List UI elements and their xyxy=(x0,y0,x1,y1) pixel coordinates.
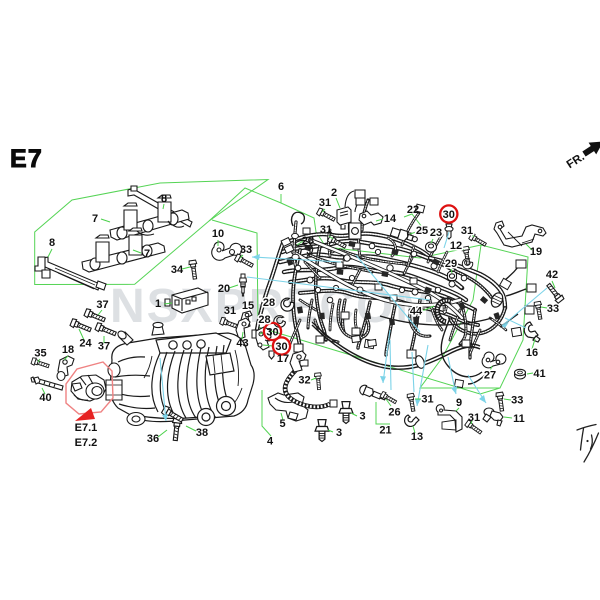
svg-text:38: 38 xyxy=(196,427,208,439)
svg-text:12: 12 xyxy=(450,240,462,252)
svg-text:4: 4 xyxy=(267,436,274,448)
svg-text:30: 30 xyxy=(443,209,455,221)
svg-text:36: 36 xyxy=(147,433,159,445)
svg-text:15: 15 xyxy=(242,300,254,312)
svg-text:31: 31 xyxy=(421,394,433,406)
svg-text:6: 6 xyxy=(278,181,284,193)
svg-text:8: 8 xyxy=(161,193,167,205)
svg-text:35: 35 xyxy=(34,348,46,360)
svg-text:28: 28 xyxy=(263,297,275,309)
svg-text:25: 25 xyxy=(416,225,428,237)
svg-text:14: 14 xyxy=(384,213,397,225)
svg-text:18: 18 xyxy=(62,344,74,356)
svg-text:2: 2 xyxy=(331,187,337,199)
svg-text:28: 28 xyxy=(302,235,314,247)
svg-text:40: 40 xyxy=(39,392,51,404)
svg-text:11: 11 xyxy=(513,413,525,425)
svg-text:30: 30 xyxy=(266,327,278,339)
svg-text:44: 44 xyxy=(410,306,423,318)
svg-text:22: 22 xyxy=(407,204,419,216)
svg-text:16: 16 xyxy=(526,347,538,359)
svg-text:21: 21 xyxy=(379,425,391,437)
svg-text:42: 42 xyxy=(546,269,558,281)
svg-text:E7: E7 xyxy=(10,145,43,173)
svg-text:33: 33 xyxy=(240,244,252,256)
svg-text:20: 20 xyxy=(218,283,230,295)
svg-text:5: 5 xyxy=(279,418,285,430)
svg-text:37: 37 xyxy=(96,299,108,311)
svg-text:E7.2: E7.2 xyxy=(75,437,98,449)
svg-text:E7.1: E7.1 xyxy=(75,422,98,434)
svg-text:37: 37 xyxy=(98,341,110,353)
svg-text:23: 23 xyxy=(430,227,442,239)
svg-text:43: 43 xyxy=(236,338,248,350)
svg-text:7: 7 xyxy=(92,213,98,225)
svg-text:3: 3 xyxy=(359,411,365,423)
svg-text:31: 31 xyxy=(468,412,480,424)
svg-text:19: 19 xyxy=(530,246,542,258)
svg-text:31: 31 xyxy=(224,305,236,317)
svg-text:29: 29 xyxy=(445,258,457,270)
svg-text:31: 31 xyxy=(320,224,332,236)
svg-text:26: 26 xyxy=(388,407,400,419)
svg-text:33: 33 xyxy=(511,395,523,407)
svg-text:30: 30 xyxy=(275,341,287,353)
svg-text:17: 17 xyxy=(277,353,289,365)
svg-text:31: 31 xyxy=(319,197,331,209)
svg-text:13: 13 xyxy=(411,431,423,443)
svg-text:41: 41 xyxy=(533,368,545,380)
svg-text:32: 32 xyxy=(298,375,310,387)
svg-text:9: 9 xyxy=(456,397,462,409)
svg-text:27: 27 xyxy=(484,370,496,382)
svg-text:10: 10 xyxy=(212,228,224,240)
svg-text:7: 7 xyxy=(144,248,150,260)
svg-text:31: 31 xyxy=(461,225,473,237)
svg-text:28: 28 xyxy=(258,314,270,326)
svg-text:8: 8 xyxy=(49,237,55,249)
svg-text:1: 1 xyxy=(155,298,161,310)
svg-text:24: 24 xyxy=(79,338,92,350)
svg-text:3: 3 xyxy=(336,427,342,439)
svg-text:34: 34 xyxy=(171,264,184,276)
svg-text:33: 33 xyxy=(547,303,559,315)
